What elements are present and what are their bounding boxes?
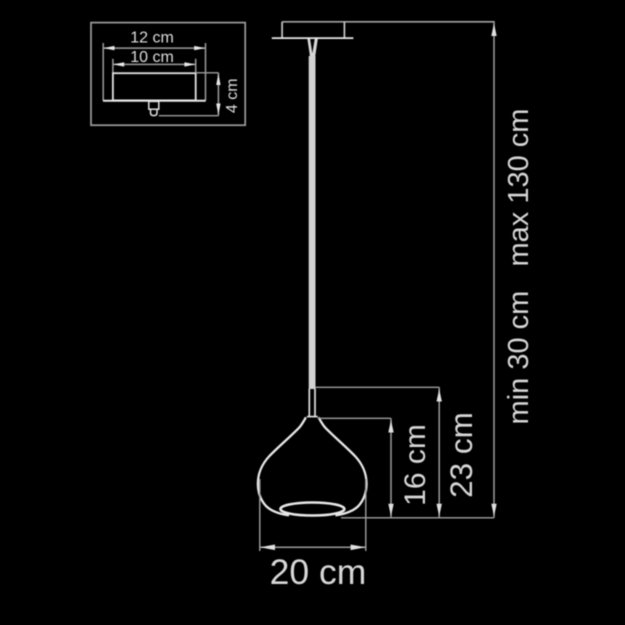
svg-text:16 cm: 16 cm <box>399 424 432 506</box>
svg-text:10 cm: 10 cm <box>130 49 174 66</box>
svg-text:20 cm: 20 cm <box>270 552 367 592</box>
svg-text:min 30 cm max 130 cm: min 30 cm max 130 cm <box>503 109 535 425</box>
svg-text:12 cm: 12 cm <box>130 29 174 46</box>
svg-text:23 cm: 23 cm <box>443 412 479 498</box>
svg-text:4 cm: 4 cm <box>224 78 241 113</box>
